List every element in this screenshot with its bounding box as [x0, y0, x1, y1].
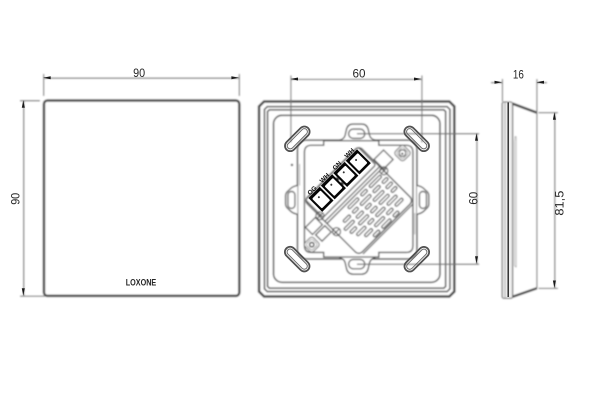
- svg-text:60: 60: [353, 66, 366, 80]
- svg-text:60: 60: [467, 191, 481, 204]
- svg-text:16: 16: [513, 68, 524, 82]
- svg-text:90: 90: [133, 66, 145, 80]
- svg-text:LOXONE: LOXONE: [126, 277, 157, 287]
- svg-text:81,5: 81,5: [552, 190, 566, 215]
- svg-text:90: 90: [9, 193, 23, 205]
